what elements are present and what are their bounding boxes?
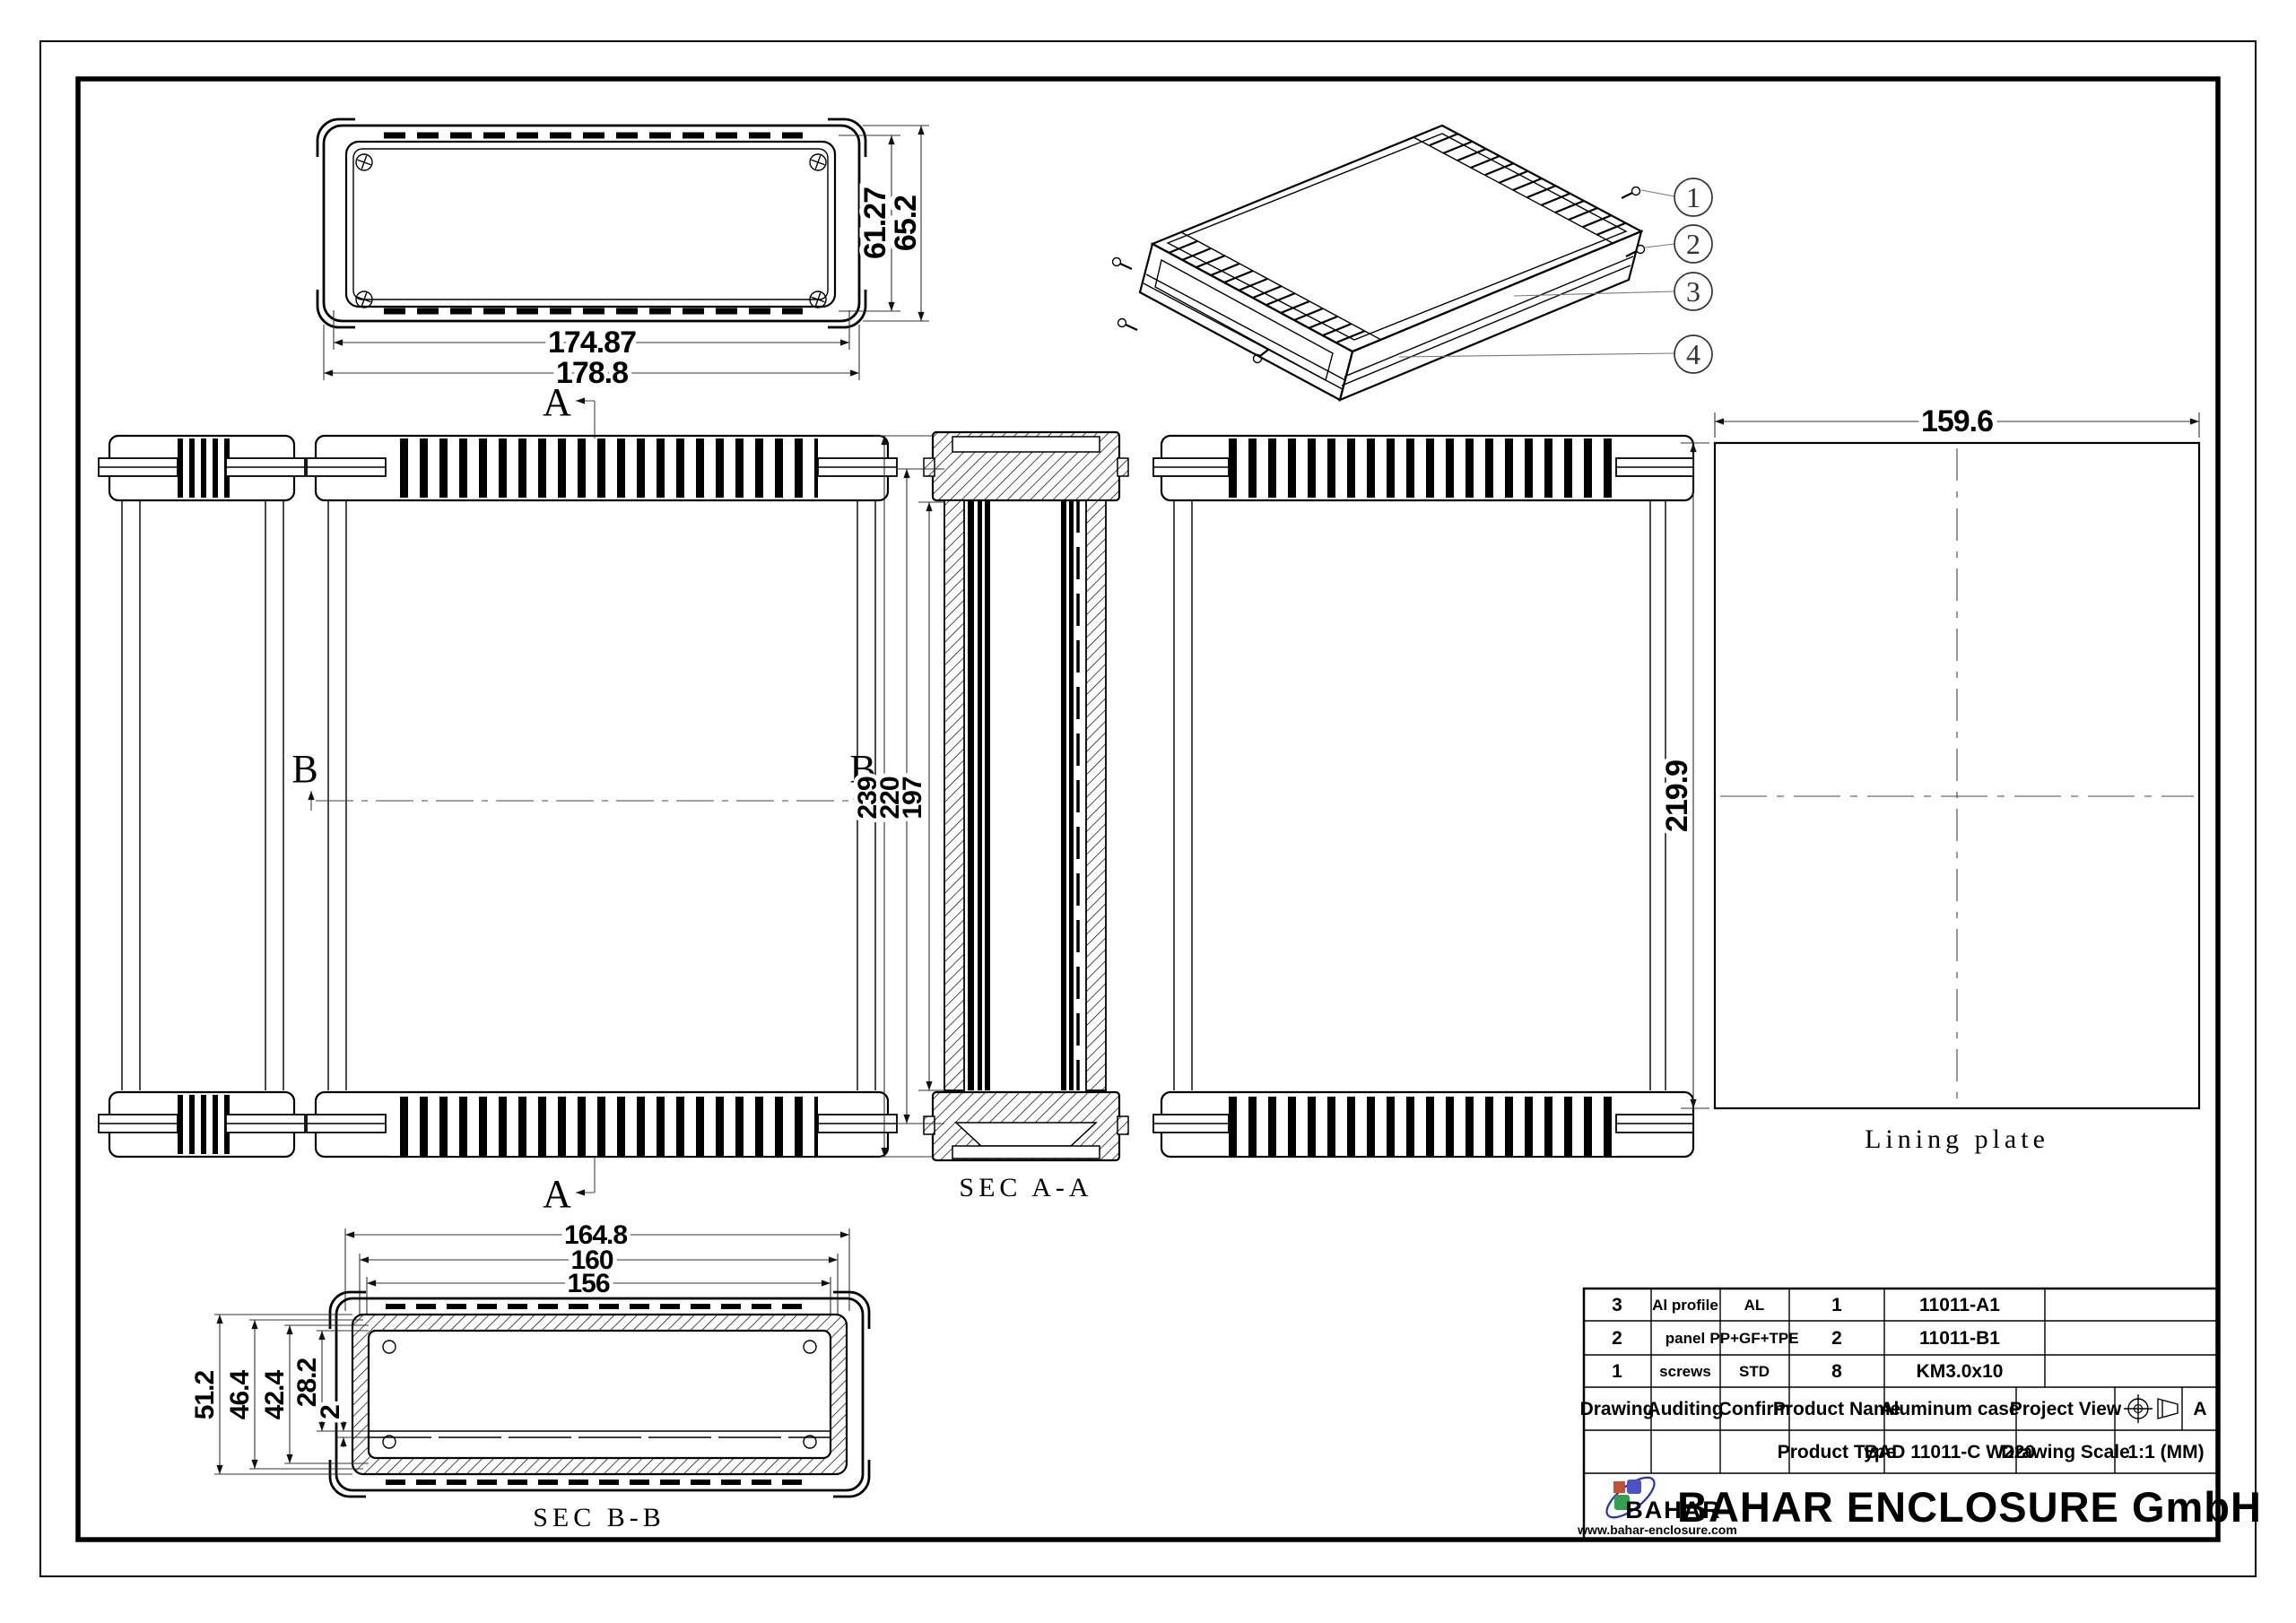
drawing-scale-label: Drawing Scale (2001, 1442, 2130, 1462)
svg-text:panel: panel (1665, 1330, 1705, 1347)
top-view: 61.27 65.2 174.87 178.8 (317, 119, 929, 390)
svg-text:1: 1 (1831, 1295, 1842, 1315)
side-view-right (1153, 436, 1693, 1157)
auditing-label: Auditing (1647, 1399, 1723, 1419)
revision: A (2193, 1399, 2206, 1419)
svg-text:2: 2 (1686, 228, 1700, 260)
dim-2: 2 (316, 1405, 345, 1419)
cad-drawing: 61.27 65.2 174.87 178.8 A A (0, 0, 2296, 1623)
callout-4: 4 (1674, 335, 1712, 373)
side-view-left (99, 436, 305, 1157)
svg-text:11011-A1: 11011-A1 (1919, 1295, 2000, 1315)
dim-156: 156 (567, 1269, 609, 1298)
front-view (307, 436, 897, 1157)
svg-text:3: 3 (1686, 275, 1700, 308)
section-aa-view: SEC A-A 239 220 197 (853, 432, 1128, 1202)
svg-text:AL: AL (1744, 1297, 1765, 1314)
sec-bb-label: SEC B-B (533, 1503, 665, 1532)
callout-2: 2 (1674, 225, 1712, 263)
screw-icon (1113, 187, 1645, 363)
lining-plate-view: 159.6 219.9 Lining plate (1660, 404, 2199, 1154)
svg-text:STD: STD (1739, 1363, 1770, 1380)
drawing-scale-value: 1:1 (MM) (2127, 1442, 2204, 1462)
dim-197: 197 (898, 777, 927, 819)
parts-row-3: 1 screws STD 8 KM3.0x10 (1612, 1361, 2003, 1382)
screw-icon (355, 153, 828, 309)
dim-width-inner: 174.87 (548, 325, 636, 360)
dim-plate-width: 159.6 (1921, 404, 1993, 438)
lining-plate-label: Lining plate (1865, 1124, 2049, 1154)
product-name-value: Aluminum case (1880, 1399, 2019, 1419)
company-name: BAHAR ENCLOSURE GmbH (1677, 1483, 2262, 1531)
svg-text:2: 2 (1612, 1328, 1622, 1349)
section-marker-b-left: B (291, 747, 317, 811)
section-bb-view: 164.8 160 156 51.2 46.4 (190, 1220, 869, 1532)
svg-text:3: 3 (1612, 1295, 1622, 1315)
svg-text:screws: screws (1659, 1363, 1711, 1380)
dim-51-2: 51.2 (190, 1370, 220, 1419)
svg-text:2: 2 (1831, 1328, 1842, 1349)
callout-1: 1 (1674, 178, 1712, 216)
svg-text:11011-B1: 11011-B1 (1919, 1328, 2000, 1349)
dim-28-2: 28.2 (292, 1358, 322, 1407)
svg-text:A: A (543, 380, 571, 424)
svg-text:8: 8 (1831, 1361, 1842, 1382)
svg-text:PP+GF+TPE: PP+GF+TPE (1709, 1330, 1798, 1347)
svg-text:4: 4 (1686, 338, 1700, 370)
project-view-label: Project View (2010, 1399, 2122, 1419)
dim-height-inner: 61.27 (858, 187, 892, 259)
dim-46-4: 46.4 (225, 1369, 255, 1419)
parts-row-2: 2 panel PP+GF+TPE 2 11011-B1 (1612, 1328, 2000, 1349)
title-block: 3 Al profile AL 1 11011-A1 2 panel PP+GF… (1577, 1289, 2262, 1540)
parts-row-1: 3 Al profile AL 1 11011-A1 (1612, 1295, 2000, 1315)
isometric-view: 1 2 3 4 (1113, 126, 1713, 400)
sec-aa-label: SEC A-A (959, 1173, 1092, 1202)
section-marker-a-bottom: A (543, 1148, 595, 1216)
drawing-label: Drawing (1580, 1399, 1655, 1419)
drawing-sheet: 61.27 65.2 174.87 178.8 A A (0, 0, 2296, 1623)
dim-height-outer: 65.2 (889, 195, 923, 251)
projection-symbol-icon (2124, 1394, 2178, 1423)
svg-text:B: B (291, 747, 317, 791)
svg-text:A: A (543, 1172, 571, 1216)
dim-plate-height: 219.9 (1660, 760, 1694, 832)
svg-text:Al profile: Al profile (1652, 1297, 1718, 1314)
dim-42-4: 42.4 (260, 1369, 290, 1419)
svg-text:KM3.0x10: KM3.0x10 (1917, 1361, 2004, 1382)
callout-3: 3 (1674, 273, 1712, 310)
svg-text:1: 1 (1612, 1361, 1622, 1382)
svg-text:1: 1 (1686, 181, 1700, 213)
